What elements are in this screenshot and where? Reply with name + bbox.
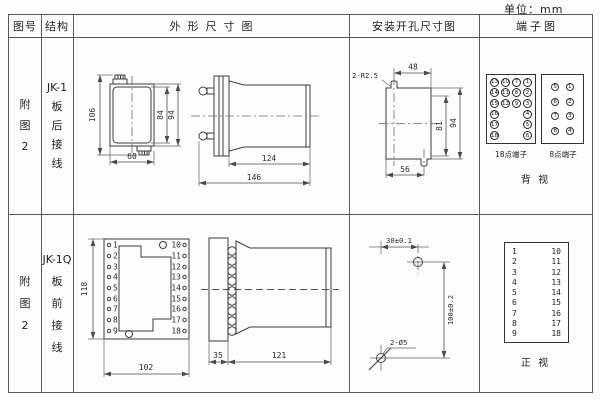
terminal-pin: 10 — [501, 78, 510, 87]
terminal-pair: 312 — [512, 268, 561, 277]
svg-text:9: 9 — [113, 327, 118, 336]
structure-line: 后 — [52, 119, 63, 132]
figure-line: 2 — [22, 140, 29, 153]
terminal-pin: 6 — [551, 98, 559, 106]
terminal-pin: 7 — [512, 78, 521, 87]
slot-radius-label: 2-R2.5 — [352, 71, 378, 80]
terminal-pin: 16 — [490, 110, 499, 119]
terminal-pin: 4 — [523, 110, 532, 119]
cutout-dimensions: 48 2-R2.5 81 94 56 — [352, 63, 463, 179]
header-figure: 图号 — [9, 15, 41, 37]
svg-text:12: 12 — [171, 263, 181, 272]
svg-text:10: 10 — [171, 241, 181, 250]
svg-text:6: 6 — [113, 295, 118, 304]
side-view-dimensions: 124 146 — [199, 141, 310, 186]
terminal-diagram-row2: 110 211 312 413 514 615 716 817 918 正 视 — [479, 214, 592, 392]
figure-line: 图 — [20, 297, 31, 310]
terminal-pin: 7 — [551, 112, 559, 120]
side-view-dimensions: 35 121 — [209, 327, 331, 365]
dim-outer-height: 94 — [167, 110, 176, 120]
install-drawing-jk1q: 30±0.1 100±0.2 2-Ø5 — [349, 214, 479, 392]
svg-text:2: 2 — [113, 252, 118, 261]
structure-line: JK-1 — [47, 81, 67, 94]
terminal-pin: 3 — [566, 112, 574, 120]
dim-inner-height: 81 — [435, 121, 444, 131]
terminal-pin: 8 — [512, 88, 521, 97]
svg-text:8: 8 — [113, 316, 118, 325]
terminal-pair: 514 — [512, 288, 561, 297]
structure-line: 接 — [52, 319, 63, 332]
label-18pt: 18点端子 — [481, 149, 541, 160]
terminal-pin: 6 — [523, 131, 532, 140]
mounting-holes — [369, 244, 450, 371]
terminal-pair: 211 — [512, 257, 561, 266]
panel-cutout — [379, 76, 441, 178]
terminal-pin: 1 — [523, 78, 532, 87]
figure-line: 图 — [20, 119, 31, 132]
figure-line: 2 — [22, 319, 29, 332]
terminal-pair: 918 — [512, 329, 561, 338]
terminal-pin: 13 — [490, 78, 499, 87]
terminal-pin: 15 — [490, 99, 499, 108]
structure-line: 接 — [52, 138, 63, 151]
dim-hole-spacing-h: 30±0.1 — [386, 236, 412, 245]
terminal-pin: 12 — [501, 99, 510, 108]
terminal-pin: 8 — [551, 127, 559, 135]
terminal-pin: 2 — [566, 98, 574, 106]
front-view-dimensions: 106 84 94 60 — [88, 75, 181, 165]
dim-height: 118 — [80, 282, 89, 297]
outline-drawing-jk1: 106 84 94 60 — [73, 37, 349, 214]
figure-line: 附 — [20, 98, 31, 111]
svg-text:14: 14 — [171, 284, 181, 293]
terminal-pin: 4 — [566, 127, 574, 135]
dim-total-length: 146 — [247, 173, 262, 182]
dim-width: 60 — [127, 152, 137, 161]
terminal-pin: 18 — [490, 131, 499, 140]
terminal-block-8pt: 5 1 6 2 7 3 8 4 — [541, 74, 584, 144]
svg-text:7: 7 — [113, 305, 118, 314]
terminal-numbers-right: 10 11 12 13 14 15 16 17 18 — [171, 241, 186, 336]
terminal-pair: 110 — [512, 247, 561, 256]
terminal-diagram-row1: 13 10 7 1 14 11 8 2 15 12 9 3 16 4 17 5 — [479, 37, 592, 214]
terminal-pair: 716 — [512, 309, 561, 318]
structure-row2: JK-1Q 板 前 接 线 — [41, 214, 73, 392]
dim-hole-spacing-v: 100±0.2 — [446, 295, 455, 325]
structure-line: 线 — [52, 341, 63, 354]
svg-text:16: 16 — [171, 305, 181, 314]
svg-text:4: 4 — [113, 273, 118, 282]
dim-width: 102 — [139, 363, 154, 372]
terminal-pin: 5 — [523, 120, 532, 129]
header-terminal: 端子图 — [479, 15, 592, 37]
dimension-table: 图号 结构 外形尺寸图 安装开孔尺寸图 端子图 附 图 2 JK-1 板 后 接… — [8, 14, 593, 393]
structure-line: 前 — [52, 297, 63, 310]
svg-text:15: 15 — [171, 295, 181, 304]
figure-line: 附 — [20, 275, 31, 288]
relay-side-view — [191, 76, 321, 156]
terminal-block-18pt: 13 10 7 1 14 11 8 2 15 12 9 3 16 4 17 5 — [486, 74, 536, 144]
terminal-numbers-left: 1 2 3 4 5 6 7 8 9 — [107, 241, 118, 336]
dim-flange-width: 35 — [213, 351, 223, 360]
view-label-rear: 背 视 — [479, 171, 592, 186]
terminal-pin: 17 — [490, 120, 499, 129]
dim-outer-height: 94 — [449, 118, 458, 128]
install-drawing-jk1: 48 2-R2.5 81 94 56 — [349, 37, 479, 214]
outline-drawing-jk1q: 1 2 3 4 5 6 7 8 9 10 11 12 13 14 15 — [73, 214, 349, 392]
relay-front-view: 1 2 3 4 5 6 7 8 9 10 11 12 13 14 15 — [104, 239, 189, 339]
structure-row1: JK-1 板 后 接 线 — [41, 37, 73, 214]
terminal-pin: 5 — [551, 83, 559, 91]
figure-number-row2: 附 图 2 — [9, 214, 41, 392]
dim-body-length: 124 — [262, 154, 277, 163]
structure-line: JK-1Q — [43, 253, 72, 266]
terminal-pair: 413 — [512, 278, 561, 287]
terminal-pin: 14 — [490, 88, 499, 97]
terminal-pair: 615 — [512, 298, 561, 307]
header-structure: 结构 — [41, 15, 73, 37]
terminal-list-box: 110 211 312 413 514 615 716 817 918 — [504, 242, 569, 343]
dim-bottom-width: 56 — [400, 165, 410, 174]
header-install: 安装开孔尺寸图 — [349, 15, 479, 37]
terminal-pin: 1 — [566, 83, 574, 91]
datasheet-page: 单位：mm 图号 结构 外形尺寸图 安装开孔尺寸图 端子图 附 图 2 JK-1… — [0, 0, 600, 400]
relay-front-view — [110, 75, 154, 155]
svg-text:18: 18 — [171, 327, 181, 336]
label-8pt: 8点端子 — [538, 149, 588, 160]
view-label-front: 正 视 — [479, 354, 592, 369]
dim-top-width: 48 — [408, 63, 418, 72]
relay-side-view — [201, 238, 339, 341]
svg-text:17: 17 — [171, 316, 181, 325]
figure-number-row1: 附 图 2 — [9, 37, 41, 214]
terminal-pin: 2 — [523, 88, 532, 97]
terminal-pin: 3 — [523, 99, 532, 108]
svg-text:1: 1 — [113, 241, 118, 250]
dim-body-length: 121 — [272, 351, 287, 360]
dim-total-height: 106 — [88, 108, 97, 123]
terminal-pin: 11 — [501, 88, 510, 97]
structure-line: 板 — [52, 275, 63, 288]
svg-text:11: 11 — [171, 252, 181, 261]
structure-line: 线 — [52, 157, 63, 170]
svg-text:5: 5 — [113, 284, 118, 293]
header-outline: 外形尺寸图 — [73, 15, 349, 37]
svg-text:3: 3 — [113, 263, 118, 272]
hole-dimensions: 30±0.1 100±0.2 2-Ø5 — [369, 236, 455, 358]
structure-line: 板 — [52, 100, 63, 113]
hole-diameter-label: 2-Ø5 — [390, 338, 407, 347]
terminal-pin: 9 — [512, 99, 521, 108]
dim-inner-height: 84 — [156, 110, 165, 120]
svg-text:13: 13 — [171, 273, 181, 282]
terminal-pair: 817 — [512, 319, 561, 328]
